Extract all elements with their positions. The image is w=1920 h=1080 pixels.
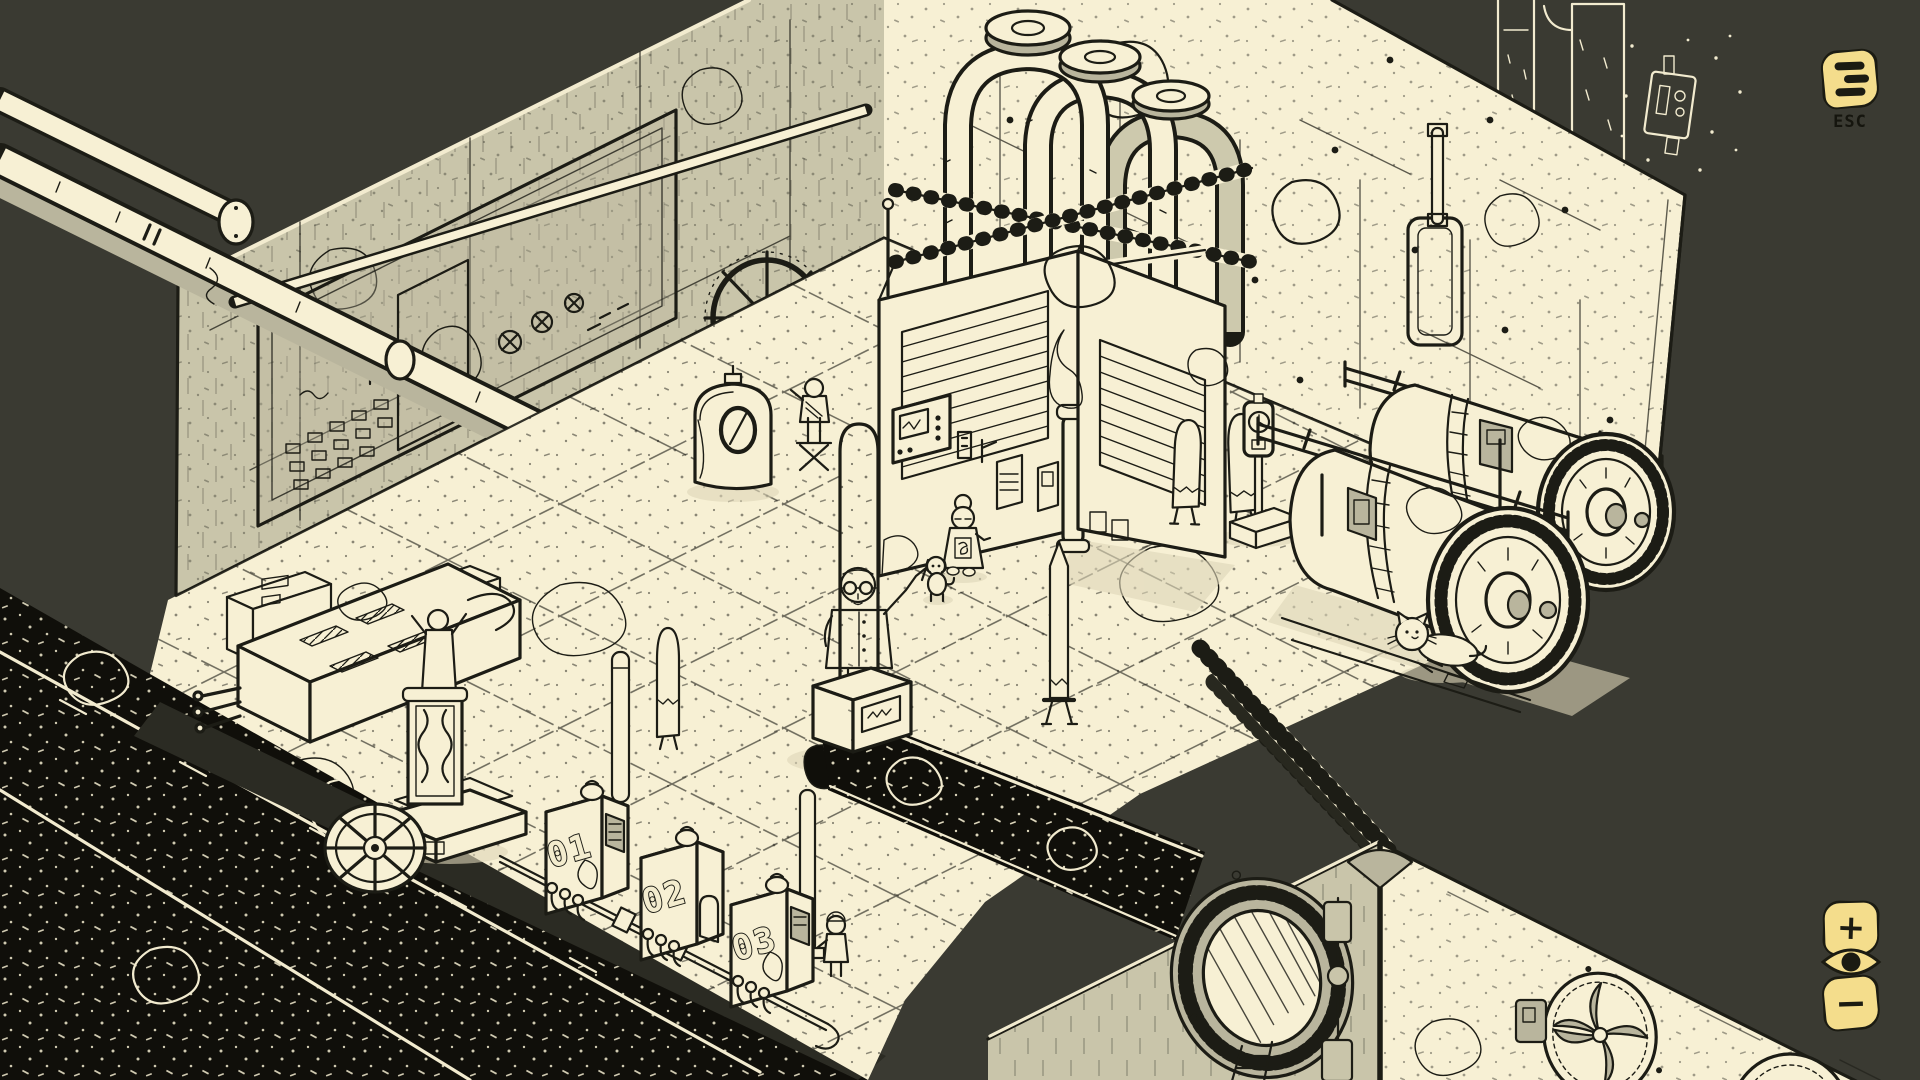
hamburger-menu-icon (1830, 59, 1869, 99)
minus-icon: − (1834, 980, 1867, 1025)
plus-icon: + (1836, 908, 1866, 949)
zoom-out-button[interactable]: − (1822, 975, 1880, 1031)
statue-pedestal[interactable] (813, 668, 911, 752)
menu-button[interactable] (1821, 49, 1879, 109)
view-toggle-button[interactable] (1819, 946, 1883, 978)
eye-pupil (1842, 953, 1861, 972)
game-stage: 01 02 03 ESC + − (0, 0, 1920, 1080)
floor-valve-wheel[interactable] (325, 804, 425, 892)
scene-illustration: 01 02 03 (0, 0, 1920, 1080)
pump-chimney-1 (612, 652, 629, 802)
walking-candle-left[interactable] (657, 628, 679, 749)
wall-box[interactable] (1516, 1000, 1546, 1042)
menu-escape-hint: ESC (1818, 112, 1882, 132)
